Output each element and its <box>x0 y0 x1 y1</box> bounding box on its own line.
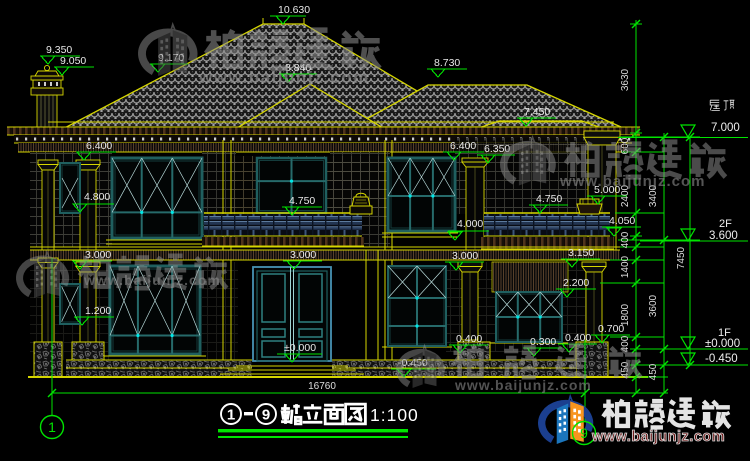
svg-text:3630: 3630 <box>620 68 631 91</box>
svg-text:3.600: 3.600 <box>709 230 738 242</box>
svg-text:3.000: 3.000 <box>452 250 478 262</box>
svg-text:±0.000: ±0.000 <box>284 342 316 354</box>
svg-text:400: 400 <box>620 231 631 248</box>
svg-text:7450: 7450 <box>676 246 687 269</box>
svg-text:0.400: 0.400 <box>456 333 482 345</box>
svg-text:10.630: 10.630 <box>278 4 310 16</box>
svg-text:4.050: 4.050 <box>609 215 635 227</box>
svg-text:9: 9 <box>262 407 270 424</box>
svg-text:1.200: 1.200 <box>85 305 111 317</box>
svg-text:7.450: 7.450 <box>524 106 550 118</box>
svg-text:www.baijunjz.com: www.baijunjz.com <box>198 68 370 87</box>
svg-text:450: 450 <box>648 363 659 380</box>
svg-text:2F: 2F <box>719 218 732 230</box>
svg-text:1: 1 <box>227 407 235 424</box>
svg-text:3.150: 3.150 <box>568 247 594 259</box>
svg-text:±0.000: ±0.000 <box>705 338 740 350</box>
svg-text:16760: 16760 <box>308 381 336 392</box>
svg-text:1400: 1400 <box>620 255 631 278</box>
svg-text:6.400: 6.400 <box>450 140 476 152</box>
svg-text:www.baijunjz.com: www.baijunjz.com <box>559 173 705 190</box>
svg-text:1:100: 1:100 <box>370 405 419 425</box>
svg-text:www.baijunjz.com: www.baijunjz.com <box>591 429 725 445</box>
svg-text:1: 1 <box>48 419 56 435</box>
svg-text:3600: 3600 <box>648 294 659 317</box>
svg-text:4.750: 4.750 <box>536 193 562 205</box>
svg-text:-0.450: -0.450 <box>705 353 738 365</box>
svg-text:4.800: 4.800 <box>84 191 110 203</box>
svg-text:0.400: 0.400 <box>565 332 591 344</box>
svg-text:9.050: 9.050 <box>60 55 86 67</box>
svg-text:6.400: 6.400 <box>86 140 112 152</box>
svg-text:7.000: 7.000 <box>711 122 740 134</box>
svg-text:3.000: 3.000 <box>290 249 316 261</box>
svg-text:4.750: 4.750 <box>289 195 315 207</box>
svg-text:9: 9 <box>580 425 588 441</box>
svg-text:4.000: 4.000 <box>457 218 483 230</box>
svg-text:1800: 1800 <box>620 303 631 326</box>
svg-text:8.730: 8.730 <box>434 57 460 69</box>
svg-text:www.baijunjz.com: www.baijunjz.com <box>83 272 221 288</box>
svg-text:2.200: 2.200 <box>563 277 589 289</box>
svg-text:www.baijunjz.com: www.baijunjz.com <box>454 377 592 393</box>
